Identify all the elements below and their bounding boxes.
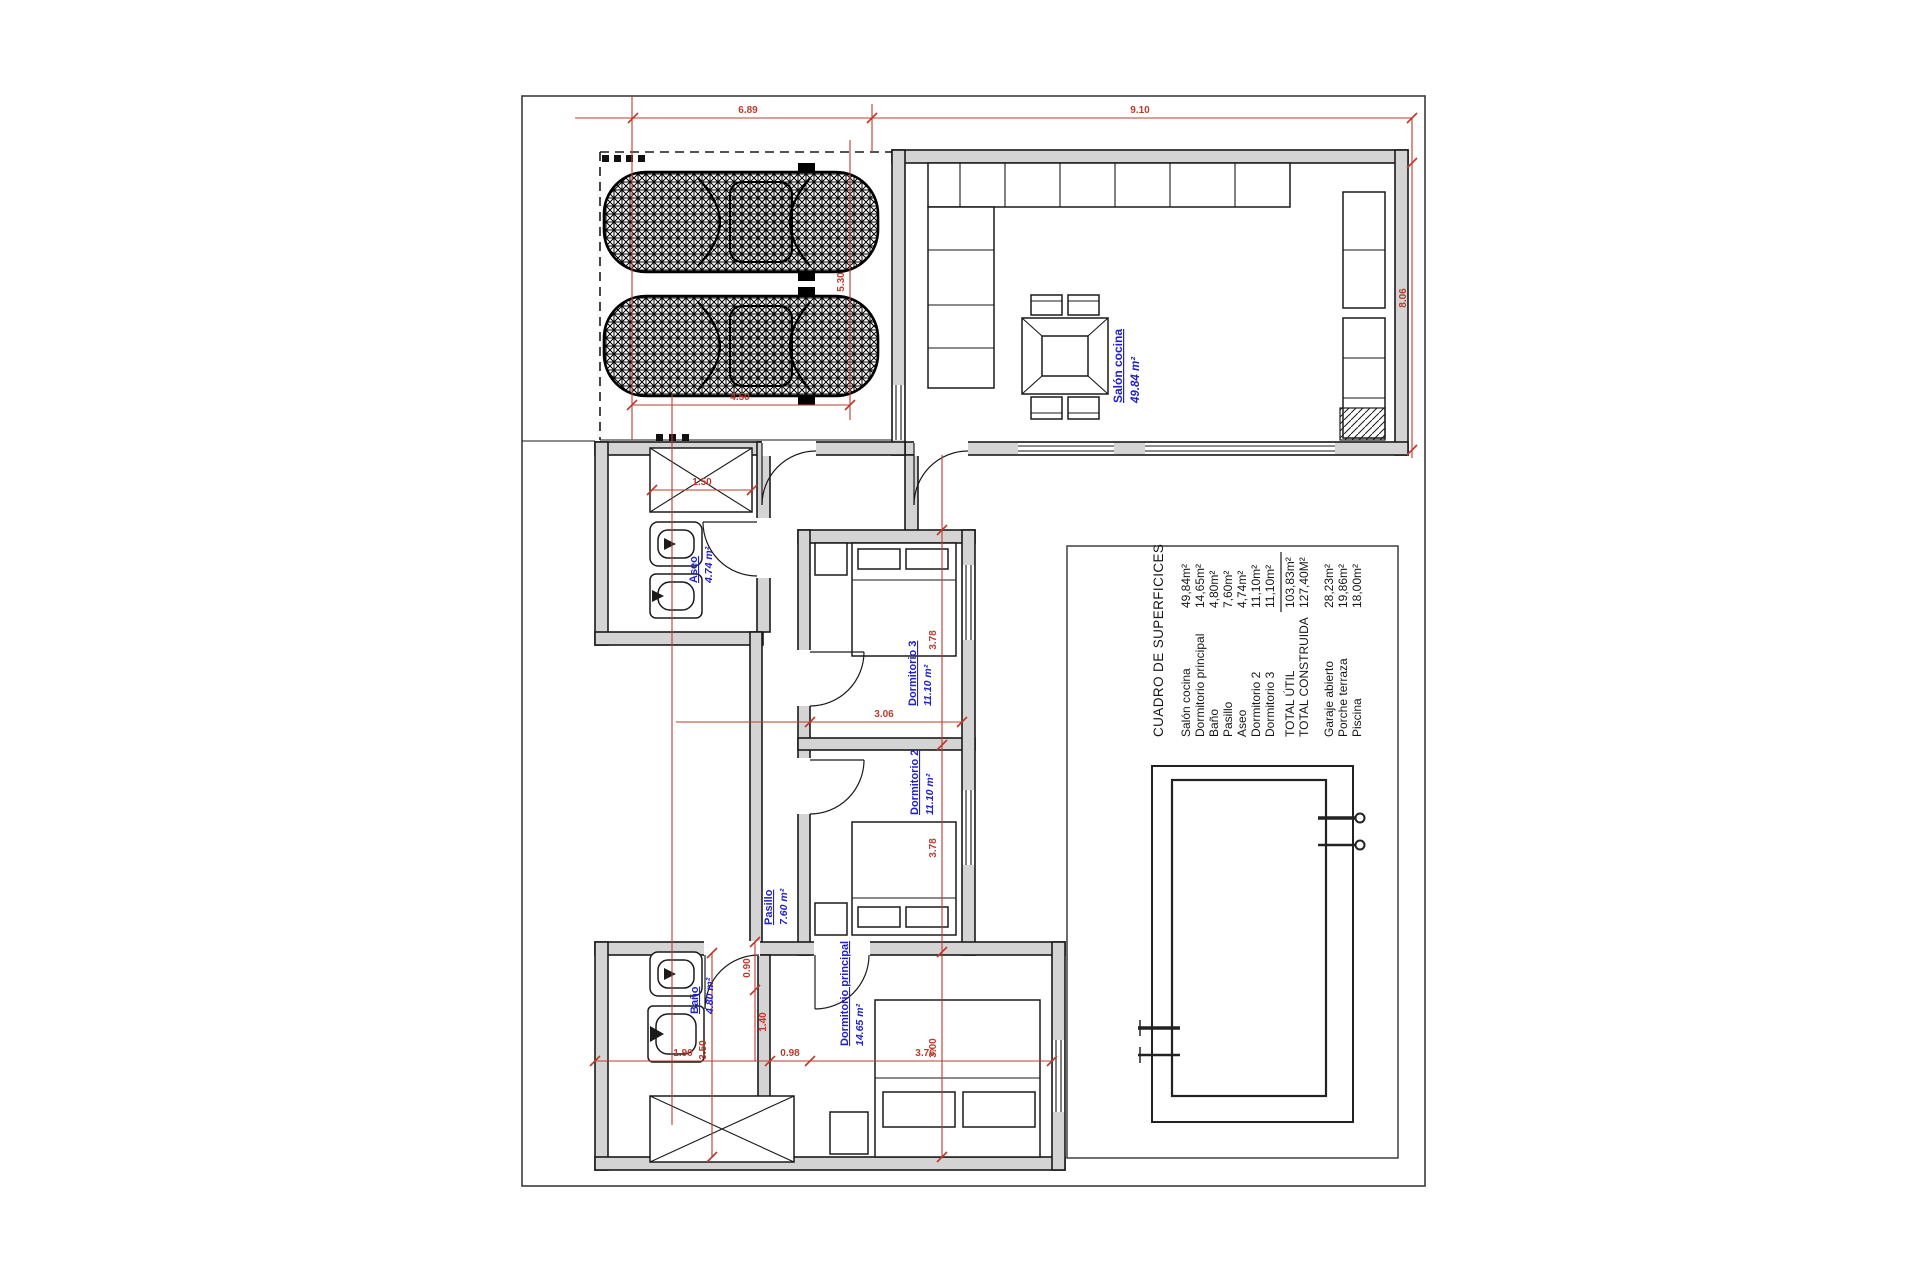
hatch-marks [602, 155, 609, 162]
table-row-name: Salón cocina [1179, 668, 1193, 737]
table-total-value: 103,83m² [1283, 557, 1297, 608]
table-outdoor-value: 18,00m² [1350, 564, 1364, 608]
room-area-salon: 49.84 m² [1130, 356, 1142, 404]
floor-plan-canvas: 6.89 9.10 8.06 5.30 4.50 1.50 3.06 3.78 … [0, 0, 1920, 1280]
table-row-value: 14,65m² [1193, 564, 1207, 608]
chair [1031, 397, 1062, 419]
table-row-name: Dormitorio 3 [1263, 671, 1277, 737]
table-row-name: Dormitorio principal [1193, 634, 1207, 737]
dim-label: 3.00 [928, 1038, 939, 1058]
table-total-value: 127,40M² [1297, 557, 1311, 608]
room-area-dorm2: 11.10 m² [924, 773, 936, 815]
window-salon-west [893, 385, 904, 440]
chair [1068, 397, 1099, 419]
aseo-fixtures [650, 448, 752, 618]
table-row-value: 4,74m² [1235, 571, 1249, 608]
window-salon-2 [1145, 443, 1335, 454]
window-dorm2 [963, 790, 974, 865]
kitchen-peninsula [928, 207, 994, 388]
table-outdoor-name: Porche terraza [1336, 658, 1350, 737]
dim-label: 5.30 [836, 272, 847, 292]
room-label-pasillo: Pasillo [763, 889, 775, 925]
kitchen-counter [928, 163, 1385, 388]
table-outdoor-value: 28,23m² [1322, 564, 1336, 608]
dim-label: 0.90 [742, 958, 753, 978]
table-row-value: 11,10m² [1263, 565, 1277, 608]
room-label-dorm2: Dormitorio 2 [909, 750, 921, 815]
chair [1031, 295, 1062, 315]
table-row-value: 11,10m² [1249, 565, 1263, 608]
room-label-dormp: Dormitorio principal [839, 941, 851, 1046]
dim-label: 1.40 [758, 1012, 769, 1032]
dim-label: 3.78 [928, 630, 939, 650]
table-row-name: Dormitorio 2 [1249, 671, 1263, 737]
room-label-salon: Salón cocina [1111, 329, 1125, 403]
room-label-aseo: Aseo [688, 556, 700, 583]
sofa [1340, 318, 1385, 440]
window-dormp [1053, 1040, 1064, 1112]
bano-fixtures [648, 952, 794, 1162]
dim-label: 3.50 [698, 1040, 709, 1060]
dim-label: 3.78 [928, 838, 939, 858]
table-row-name: Pasillo [1221, 701, 1235, 737]
terrace-slab [1067, 546, 1398, 1158]
room-area-aseo: 4.74 m² [703, 546, 715, 584]
nightstand [815, 903, 847, 935]
dim-label: 9.10 [1130, 105, 1150, 116]
pool-ladder-left [1138, 1020, 1180, 1063]
table-total-name: TOTAL ÚTIL [1282, 670, 1297, 737]
table-row-name: Aseo [1235, 709, 1249, 737]
nightstand [815, 543, 847, 575]
car-mirror [798, 163, 815, 172]
table-row-value: 49,84m² [1179, 564, 1193, 608]
chaise-corner [1340, 408, 1385, 440]
chair [1068, 295, 1099, 315]
pool [1138, 766, 1365, 1122]
table-row-value: 4,80m² [1207, 571, 1221, 608]
table-outdoor-name: Garaje abierto [1322, 661, 1336, 737]
room-area-pasillo: 7.60 m² [778, 888, 790, 925]
dim-label: 1.90 [673, 1048, 693, 1059]
car-1 [604, 163, 878, 281]
dining-table [1022, 295, 1108, 419]
dim-label: 4.50 [730, 392, 750, 403]
dim-label: 6.89 [738, 105, 758, 116]
window-dorm3 [963, 565, 974, 640]
dim-label: 8.06 [1398, 288, 1409, 308]
table-outdoor-name: Piscina [1350, 698, 1364, 737]
surface-table: CUADRO DE SUPERFICICES Salón cocina 49,8… [1151, 544, 1364, 737]
room-area-bano: 4.80 m² [704, 977, 716, 1015]
table-outdoor-value: 19,86m² [1336, 564, 1350, 608]
dim-label: 3.06 [874, 709, 894, 720]
surface-table-title: CUADRO DE SUPERFICICES [1151, 544, 1166, 737]
room-area-dormp: 14.65 m² [854, 1003, 866, 1046]
table-total-name: TOTAL CONSTRUIDA [1297, 617, 1311, 737]
dorm3-door [810, 652, 864, 706]
dim-label: 0.98 [780, 1048, 800, 1059]
nightstand [830, 1112, 868, 1154]
car-2 [604, 287, 878, 405]
dorm2-door [810, 760, 864, 814]
room-area-dorm3: 11.10 m² [922, 664, 934, 706]
table-row-name: Baño [1207, 709, 1221, 737]
window-salon-1 [1018, 443, 1114, 454]
room-label-dorm3: Dormitorio 3 [907, 641, 919, 706]
table-row-value: 7,60m² [1221, 571, 1235, 608]
room-label-bano: Baño [689, 986, 701, 1014]
dim-label: 1.50 [692, 477, 712, 488]
